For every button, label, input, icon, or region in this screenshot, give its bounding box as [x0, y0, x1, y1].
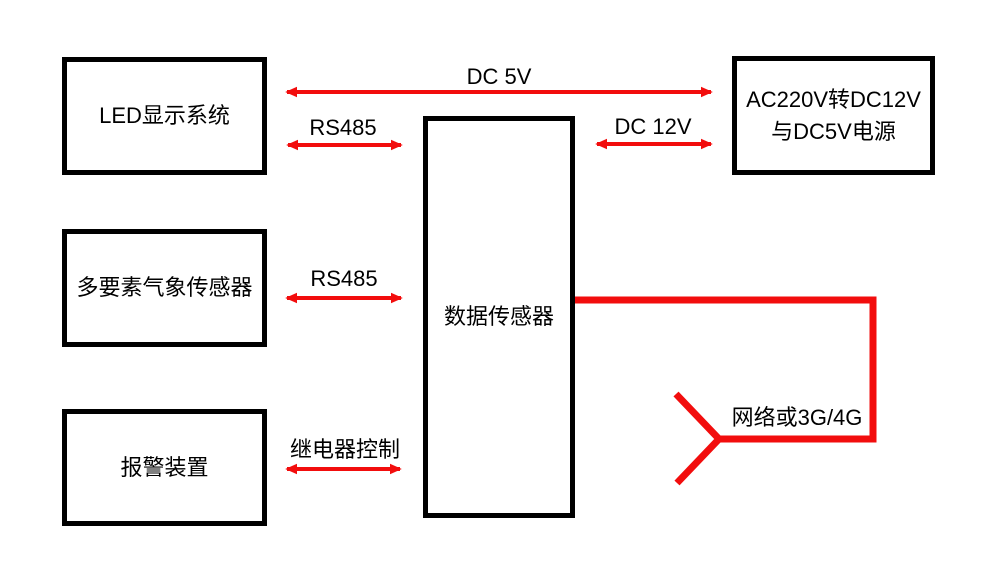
node-power-supply: AC220V转DC12V 与DC5V电源 [732, 56, 935, 175]
node-weather-sensor: 多要素气象传感器 [62, 229, 267, 347]
node-alarm-device: 报警装置 [62, 409, 267, 526]
edge-label-network: 网络或3G/4G [732, 405, 863, 431]
node-power-supply-label-line2: 与DC5V电源 [771, 119, 896, 144]
edge-label-rs485-top: RS485 [309, 115, 376, 141]
node-led-display-label: LED显示系统 [99, 100, 230, 132]
node-power-supply-label: AC220V转DC12V 与DC5V电源 [746, 84, 921, 148]
edge-label-rs485-mid: RS485 [310, 266, 377, 292]
node-data-sensor-label: 数据传感器 [444, 301, 554, 333]
edge-label-relay: 继电器控制 [290, 437, 400, 463]
node-data-sensor: 数据传感器 [423, 116, 575, 518]
node-alarm-device-label: 报警装置 [120, 452, 208, 484]
node-weather-sensor-label: 多要素气象传感器 [76, 272, 252, 304]
node-power-supply-label-line1: AC220V转DC12V [746, 87, 921, 112]
edge-label-dc5v: DC 5V [467, 64, 532, 90]
diagram-canvas: LED显示系统 多要素气象传感器 报警装置 数据传感器 AC220V转DC12V… [0, 0, 1000, 584]
edge-label-dc12v: DC 12V [614, 114, 691, 140]
node-led-display: LED显示系统 [62, 57, 267, 175]
antenna-icon [676, 394, 719, 483]
